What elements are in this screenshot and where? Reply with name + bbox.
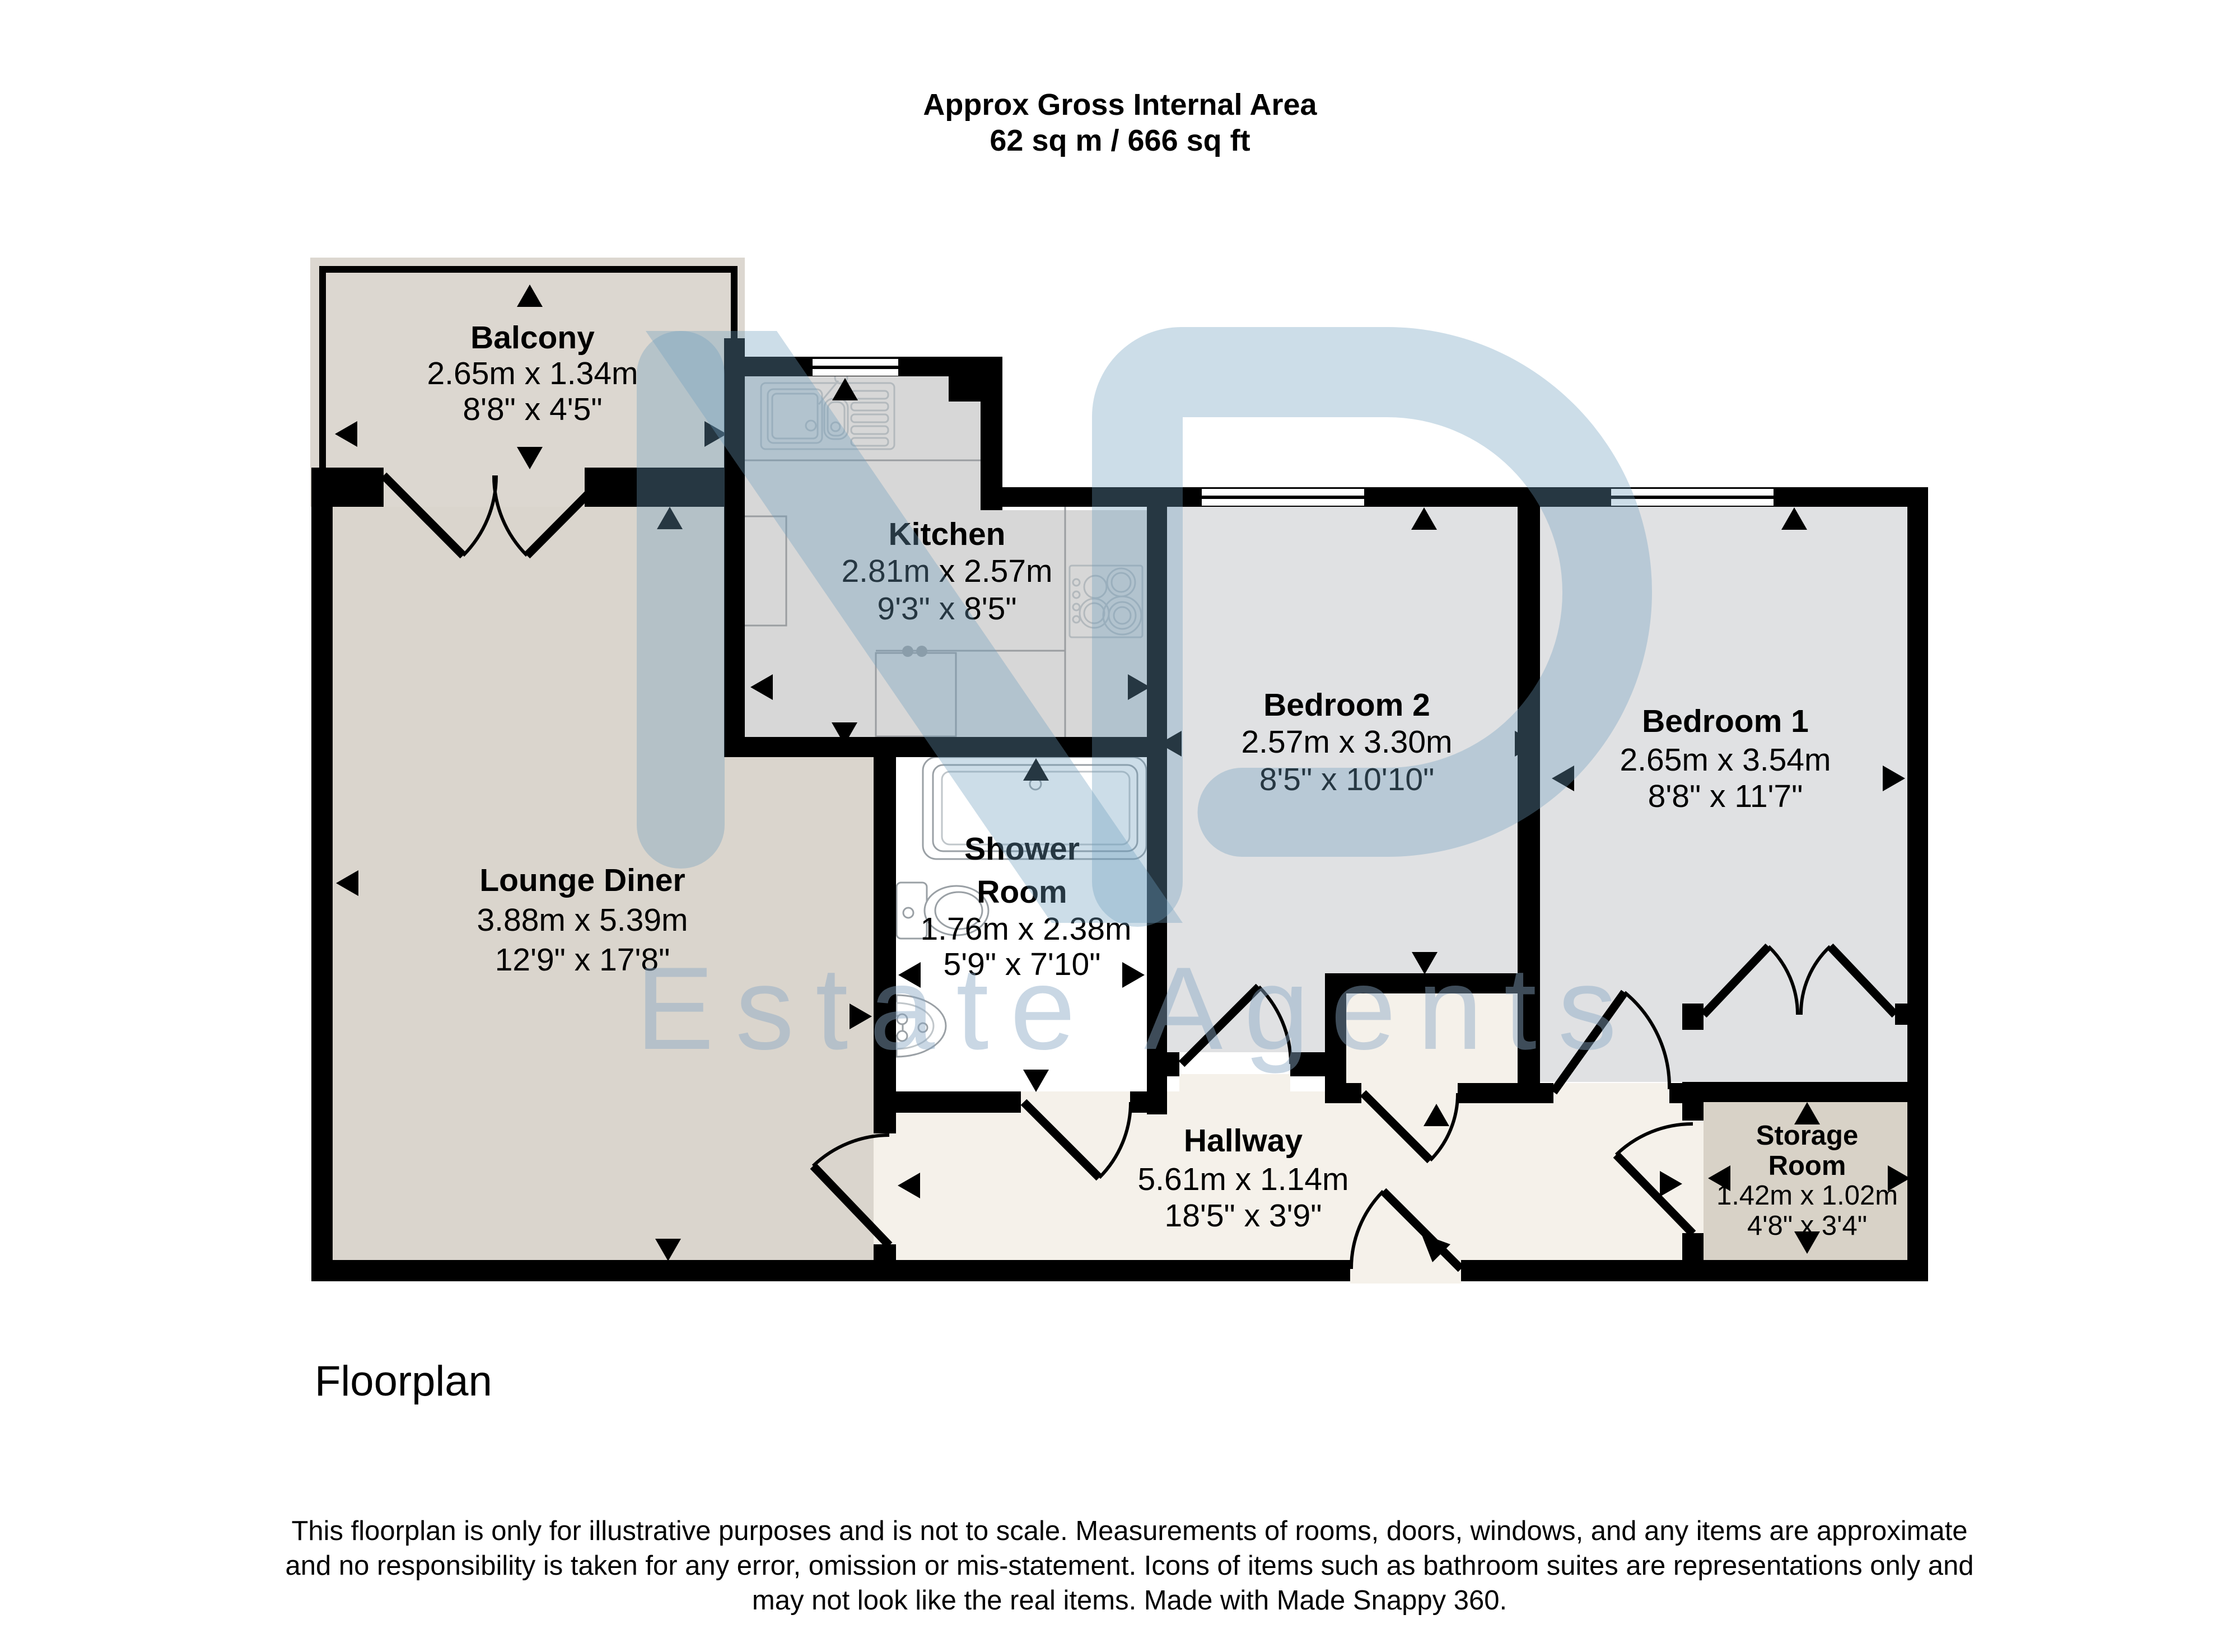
svg-text:3.88m x 5.39m: 3.88m x 5.39m [477,902,688,938]
svg-text:Balcony: Balcony [470,320,595,356]
svg-text:Floorplan: Floorplan [315,1357,492,1405]
svg-text:5.61m x 1.14m: 5.61m x 1.14m [1137,1161,1348,1197]
svg-text:Storage: Storage [1756,1121,1858,1151]
svg-text:1.42m x 1.02m: 1.42m x 1.02m [1716,1180,1898,1211]
svg-text:8'8" x 11'7": 8'8" x 11'7" [1648,778,1803,814]
svg-text:Bedroom 1: Bedroom 1 [1642,703,1809,739]
svg-text:4'8" x 3'4": 4'8" x 3'4" [1747,1211,1867,1241]
svg-text:Bedroom 2: Bedroom 2 [1263,687,1430,723]
svg-text:2.65m x 3.54m: 2.65m x 3.54m [1620,742,1831,778]
svg-text:Hallway: Hallway [1184,1123,1303,1159]
svg-text:may not look like the real ite: may not look like the real items. Made w… [752,1585,1507,1616]
svg-text:8'8" x 4'5": 8'8" x 4'5" [463,391,602,427]
svg-text:2.65m x 1.34m: 2.65m x 1.34m [427,356,638,391]
svg-text:Estate Agents: Estate Agents [636,942,1638,1074]
svg-text:Lounge Diner: Lounge Diner [479,862,685,898]
svg-text:and no responsibility is taken: and no responsibility is taken for any e… [286,1551,1974,1581]
svg-text:Approx Gross Internal Area: Approx Gross Internal Area [923,88,1317,122]
svg-text:Room: Room [1768,1151,1846,1181]
svg-text:This floorplan is only for ill: This floorplan is only for illustrative … [291,1516,1967,1546]
svg-text:18'5" x 3'9": 18'5" x 3'9" [1165,1198,1322,1234]
svg-text:62 sq m / 666 sq ft: 62 sq m / 666 sq ft [990,124,1250,157]
svg-text:2.57m x 3.30m: 2.57m x 3.30m [1241,724,1452,760]
